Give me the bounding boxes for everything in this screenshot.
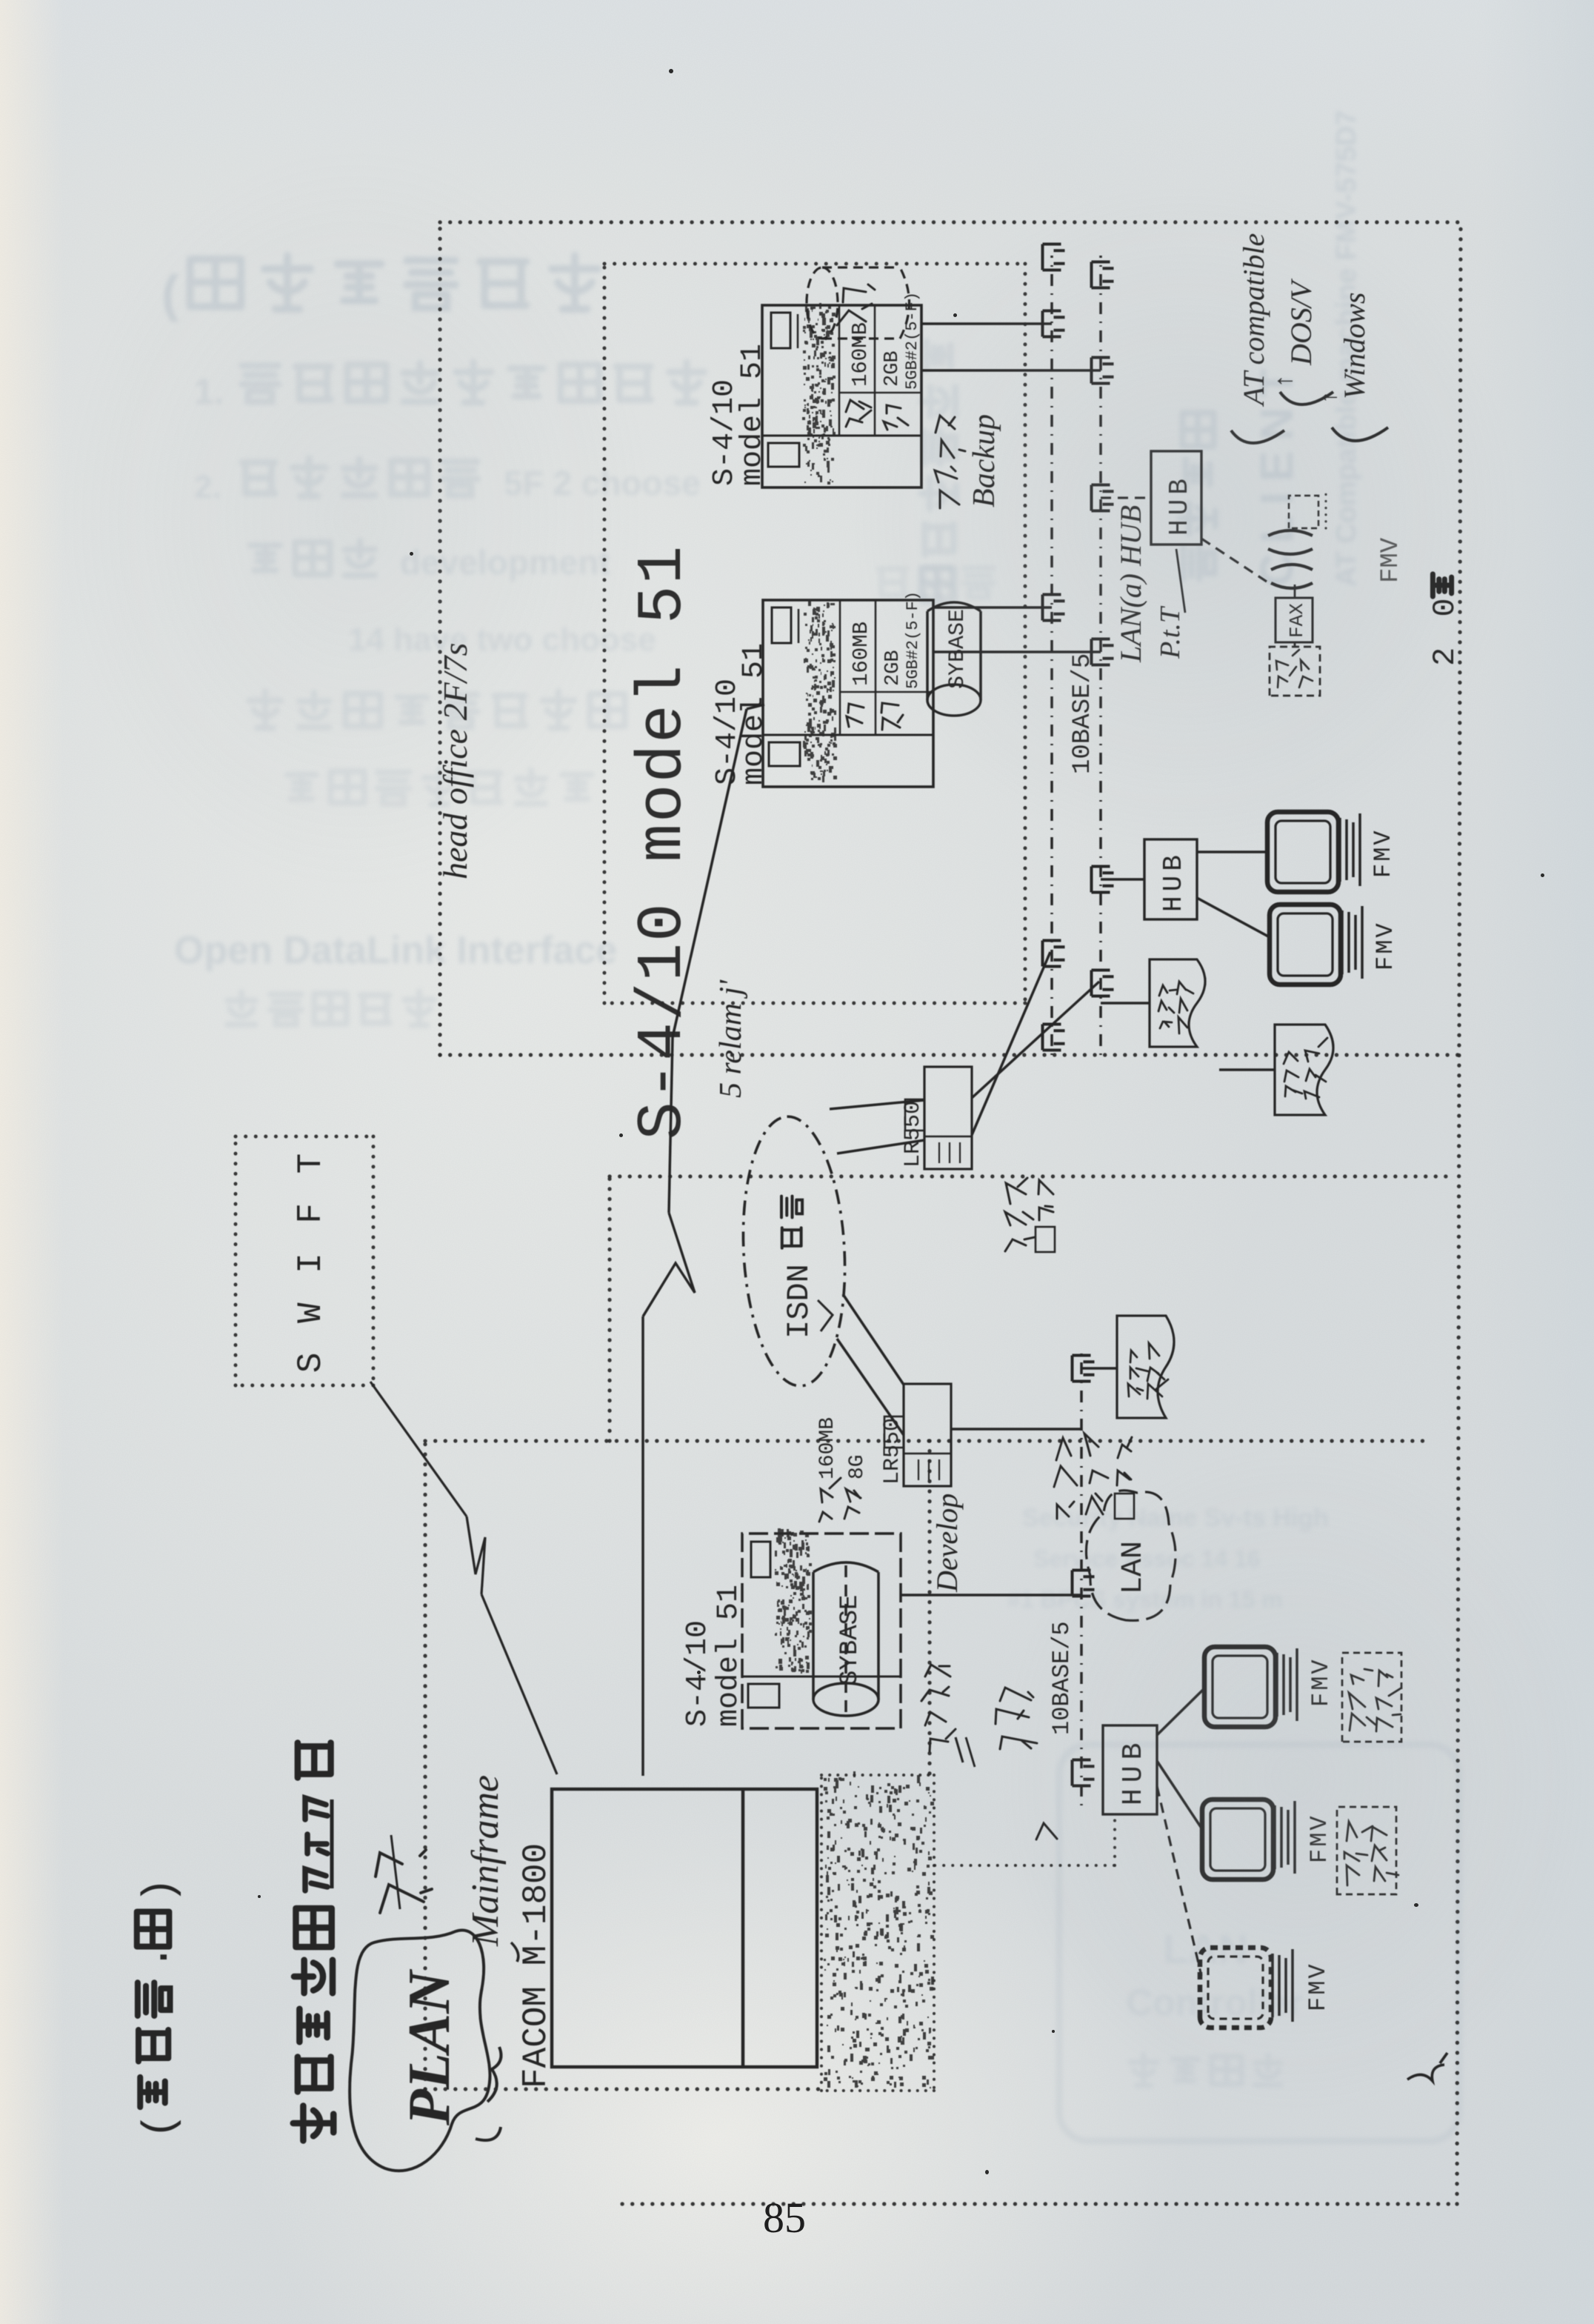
svg-text:8G: 8G bbox=[846, 1454, 869, 1479]
svg-text:HUB: HUB bbox=[1158, 850, 1189, 912]
svg-text:FMV: FMV bbox=[1372, 921, 1399, 970]
svg-text:Mainframe: Mainframe bbox=[464, 1775, 507, 1947]
svg-text:ISDN: ISDN bbox=[781, 1264, 817, 1339]
svg-text:LR550: LR550 bbox=[901, 1101, 926, 1168]
svg-text:S W I F T: S W I F T bbox=[292, 1149, 330, 1373]
svg-text:model 51: model 51 bbox=[713, 1585, 746, 1727]
svg-text:LR550: LR550 bbox=[880, 1418, 905, 1485]
svg-text:SYBASE: SYBASE bbox=[836, 1595, 864, 1685]
svg-text:160MB: 160MB bbox=[816, 1417, 839, 1479]
svg-text:FACOM M-1800: FACOM M-1800 bbox=[517, 1843, 556, 2088]
svg-text:(: ( bbox=[137, 2113, 185, 2139]
svg-text:model 51: model 51 bbox=[736, 344, 770, 486]
svg-text:PLAN: PLAN bbox=[397, 1968, 462, 2126]
svg-text:model 51: model 51 bbox=[738, 643, 771, 785]
svg-text:Develop: Develop bbox=[930, 1494, 964, 1593]
svg-text:5 relam j': 5 relam j' bbox=[714, 979, 748, 1098]
svg-text:): ) bbox=[137, 1877, 185, 1903]
